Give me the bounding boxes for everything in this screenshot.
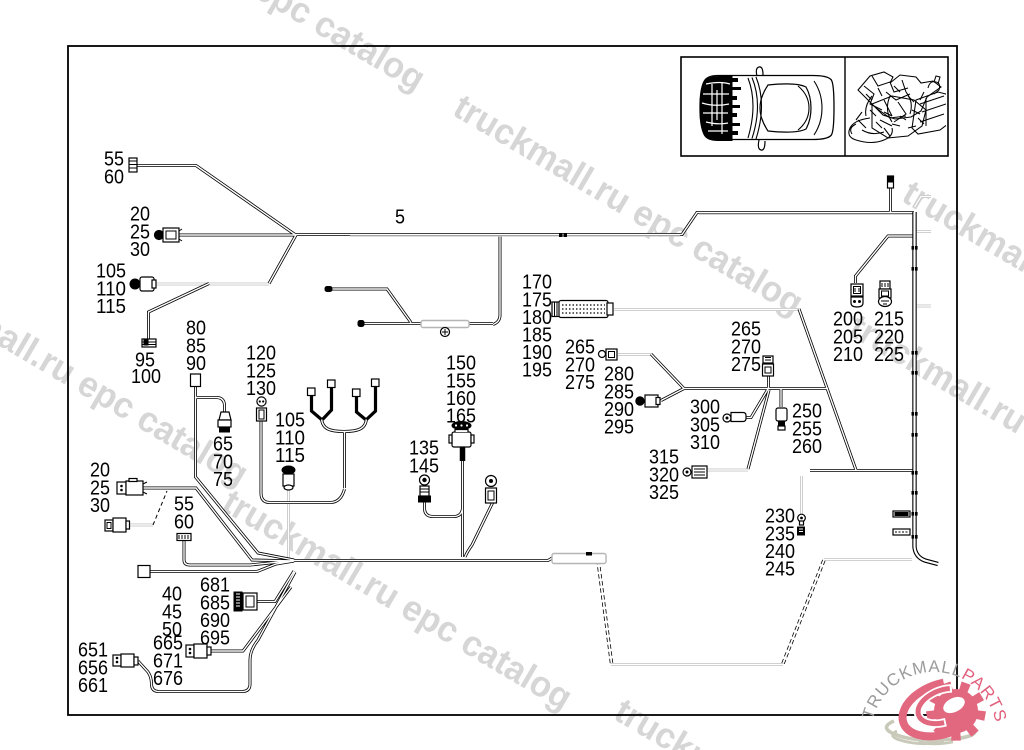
svg-text:90: 90 <box>186 353 206 375</box>
svg-text:145: 145 <box>409 455 439 477</box>
svg-text:661: 661 <box>78 675 108 697</box>
svg-text:30: 30 <box>90 495 110 517</box>
svg-text:210: 210 <box>833 344 863 366</box>
svg-text:115: 115 <box>96 296 126 318</box>
svg-text:310: 310 <box>690 432 720 454</box>
svg-text:695: 695 <box>200 628 230 650</box>
svg-text:60: 60 <box>174 511 194 533</box>
svg-text:75: 75 <box>213 469 233 491</box>
svg-text:130: 130 <box>246 378 276 400</box>
svg-text:275: 275 <box>731 354 761 376</box>
svg-text:30: 30 <box>130 239 150 261</box>
svg-text:260: 260 <box>792 436 822 458</box>
svg-text:5: 5 <box>395 207 405 229</box>
svg-text:60: 60 <box>104 166 124 188</box>
svg-text:325: 325 <box>649 482 679 504</box>
svg-text:100: 100 <box>131 366 161 388</box>
svg-text:676: 676 <box>153 668 183 690</box>
svg-text:165: 165 <box>446 406 476 428</box>
svg-text:295: 295 <box>604 417 634 439</box>
svg-text:245: 245 <box>765 559 795 581</box>
svg-text:115: 115 <box>275 445 305 467</box>
svg-text:225: 225 <box>874 344 904 366</box>
svg-text:275: 275 <box>565 372 595 394</box>
svg-text:195: 195 <box>522 360 552 382</box>
